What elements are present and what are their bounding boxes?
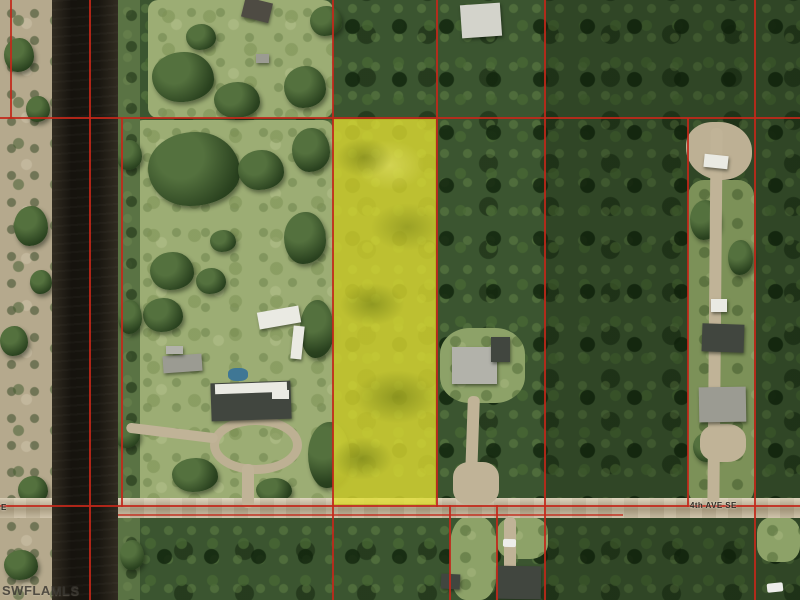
parcel-line-vertical	[544, 0, 546, 600]
main-house-white-wing	[272, 390, 289, 399]
tree-clump	[238, 150, 284, 190]
tree-clump	[728, 240, 753, 275]
aerial-map: 4th AVE SE E SWFLAMLS	[0, 0, 800, 600]
parcel-line-horizontal	[0, 505, 800, 507]
white-car	[503, 539, 516, 547]
bank-bush	[4, 550, 38, 580]
road-label-partial: E	[1, 503, 7, 512]
parcel-line-vertical	[89, 0, 91, 600]
parcel-line-horizontal	[0, 117, 800, 119]
bank-bush	[14, 206, 48, 246]
tree-clump	[310, 6, 342, 36]
tree-clump	[172, 458, 218, 492]
road-label: 4th AVE SE	[690, 501, 737, 510]
tree-clump	[284, 212, 326, 264]
right-strip-shed	[711, 299, 727, 312]
house-top-center	[460, 3, 502, 39]
tree-clump	[292, 128, 330, 172]
right-strip-house-2	[699, 387, 747, 423]
shed-top-right	[703, 154, 728, 169]
tree-clump	[196, 268, 226, 294]
grass-lot-south-3	[757, 517, 800, 562]
tree-clump	[214, 82, 260, 118]
canal	[52, 0, 118, 600]
watermark: SWFLAMLS	[2, 583, 80, 598]
parcel-line-vertical	[687, 118, 689, 507]
homestead-driveway-stem	[242, 464, 254, 508]
parcel-line-vertical	[754, 0, 756, 600]
bank-bush	[116, 140, 142, 170]
tree-clump	[150, 252, 194, 290]
parcel-line-vertical	[449, 505, 451, 600]
tree-clump	[186, 24, 216, 50]
south-house	[496, 566, 542, 600]
right-strip-house-1	[702, 323, 745, 352]
parcel-line-vertical	[121, 118, 123, 507]
homestead-driveway-loop	[210, 416, 302, 474]
tree-clump	[148, 132, 240, 206]
bank-bush	[4, 38, 34, 72]
tree-clump	[152, 52, 214, 102]
bank-bush	[0, 326, 28, 356]
parcel-line-vertical	[496, 505, 498, 600]
parcel-line-vertical	[436, 0, 438, 507]
tree-clump	[300, 300, 334, 358]
right-strip-drive-pad	[700, 424, 746, 462]
shed-gray	[162, 354, 202, 374]
parcel-line-vertical	[332, 0, 334, 600]
white-vehicle-southeast	[767, 582, 784, 593]
swimming-pool	[228, 368, 248, 381]
parcel-line-horizontal	[118, 514, 623, 516]
tree-clump	[143, 298, 183, 332]
east-house-drive-pad	[453, 462, 499, 505]
bank-bush	[120, 540, 144, 570]
tree-clump	[210, 230, 236, 252]
east-house-wing	[491, 337, 510, 362]
tree-clump	[284, 66, 326, 108]
parcel-line-vertical	[10, 0, 12, 119]
shed-small	[166, 346, 183, 354]
bank-bush	[30, 270, 52, 294]
subject-parcel-highlight	[333, 119, 436, 505]
shed-top	[256, 54, 269, 63]
